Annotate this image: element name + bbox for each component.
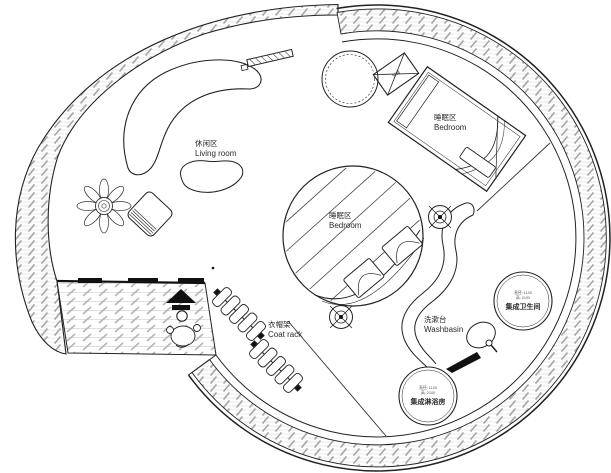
floor-plan-canvas: 空调 直径: 1100 xyxy=(0,0,611,473)
svg-text:Bedroom: Bedroom xyxy=(329,221,362,230)
column-marker-2 xyxy=(330,306,353,329)
door-panel xyxy=(128,278,158,283)
shower-pod-dim1: 直径: 1100 xyxy=(419,385,437,390)
svg-text:Bedroom: Bedroom xyxy=(434,123,467,132)
dot-mark xyxy=(212,267,215,270)
door-panel xyxy=(78,278,102,283)
svg-text:睡眠区: 睡眠区 xyxy=(329,211,352,220)
floor-plan-svg: 空调 直径: 1100 xyxy=(0,0,611,473)
door-panel xyxy=(178,278,204,283)
toilet-pod-label: 集成卫生间 xyxy=(505,302,541,311)
toilet-pod: 直径: 1100 高: 2100 集成卫生间 xyxy=(494,272,552,330)
shower-pod: 直径: 1100 高: 2100 集成淋浴房 xyxy=(399,367,457,425)
svg-text:Living room: Living room xyxy=(195,149,237,158)
svg-text:睡眠区: 睡眠区 xyxy=(434,113,457,122)
column-marker-1 xyxy=(429,206,452,229)
svg-text:洗漱台: 洗漱台 xyxy=(424,314,447,324)
svg-text:Washbasin: Washbasin xyxy=(424,325,463,334)
toilet-pod-dim1: 直径: 1100 xyxy=(514,290,532,295)
shower-pod-label: 集成淋浴房 xyxy=(410,397,446,406)
toilet-pod-dim2: 高: 2100 xyxy=(516,295,530,300)
svg-text:Coat rack: Coat rack xyxy=(268,330,303,339)
svg-text:衣帽架: 衣帽架 xyxy=(268,319,291,329)
shower-pod-dim2: 高: 2100 xyxy=(421,390,435,395)
svg-text:休闲区: 休闲区 xyxy=(195,138,218,148)
entrance-deck xyxy=(57,278,216,355)
